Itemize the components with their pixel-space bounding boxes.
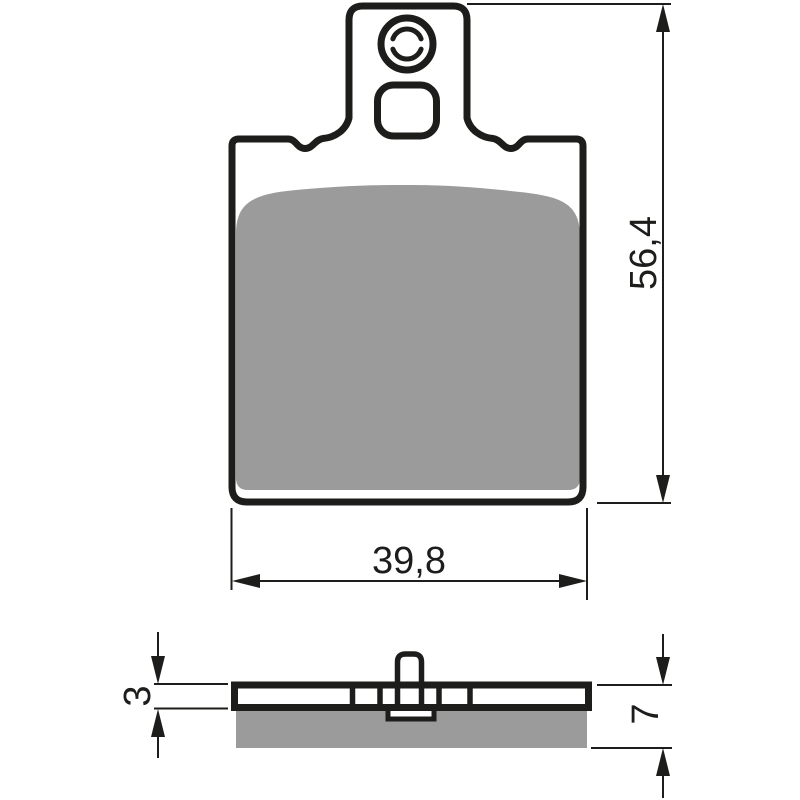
total-thickness-label: 7	[625, 703, 667, 724]
plate-arrow-down	[151, 656, 165, 684]
total-arrow-up	[656, 748, 670, 776]
side-view	[235, 654, 589, 748]
total-arrow-down	[656, 657, 670, 685]
round-hole	[381, 18, 433, 70]
brake-pad-technical-drawing: 56,4 39,8 3 7	[0, 0, 800, 800]
height-dimension-label: 56,4	[623, 216, 665, 290]
square-hole	[378, 85, 437, 136]
total-thickness-dimension: 7	[591, 634, 672, 798]
front-view	[232, 6, 583, 502]
height-arrow-up	[656, 4, 670, 32]
height-arrow-down	[656, 475, 670, 503]
backing-plate-side	[235, 685, 589, 708]
width-arrow-right	[559, 574, 587, 588]
friction-material-front	[236, 185, 580, 490]
width-arrow-left	[232, 574, 260, 588]
width-dimension: 39,8	[232, 508, 588, 600]
plate-thickness-label: 3	[117, 685, 159, 706]
plate-thickness-dimension: 3	[117, 632, 228, 758]
width-dimension-label: 39,8	[372, 540, 446, 582]
plate-arrow-up	[151, 709, 165, 737]
